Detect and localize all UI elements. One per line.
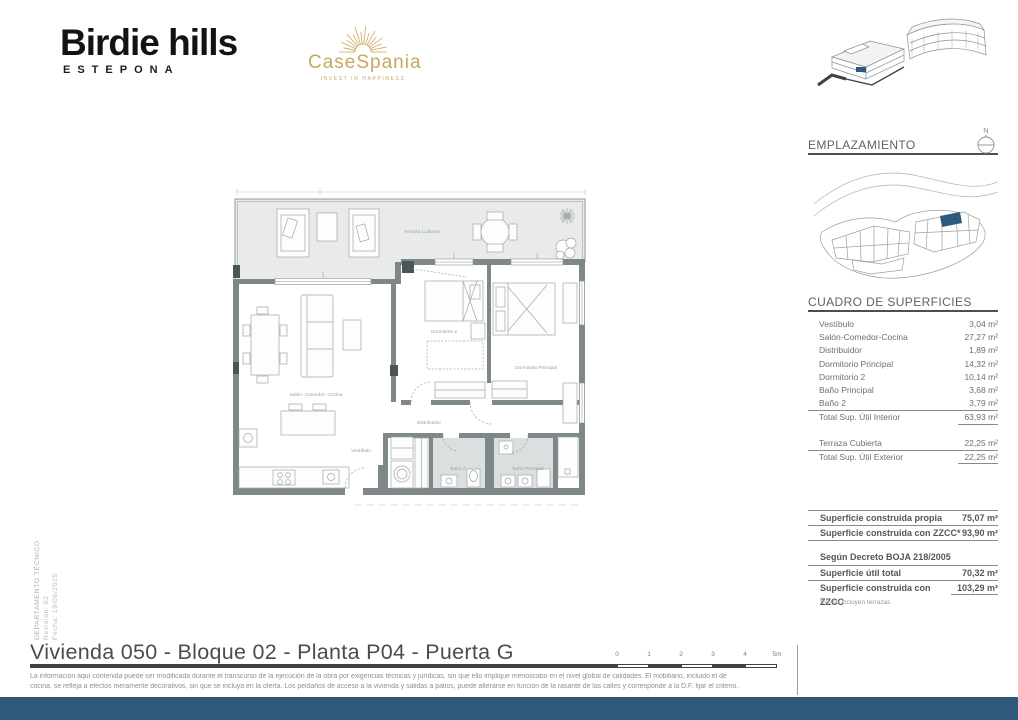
disclaimer-line: cocina, se refleja a efectos meramente d… [30,683,796,690]
scale-bar-segment [649,664,681,668]
room-label-vestibule: Vestíbulo [351,448,371,454]
terrace-footnote: *No se incluyen terrazas [808,599,998,606]
title-rule [30,664,617,668]
technical-meta: DEPARTAMENTO TÉCNICO Revisión: 02 Fecha:… [33,450,60,640]
scale-label: 5m [767,651,787,658]
scale-bar-segment [681,664,713,668]
dimension-line [237,189,585,195]
table-row: Superficie construida con ZZCC103,29 m² [808,580,998,595]
compass-north-icon: N [972,124,1000,156]
highlighted-unit-marker [856,67,866,72]
emplazamiento-title: EMPLAZAMIENTO [808,138,916,152]
bedroom2-furniture [413,269,485,369]
table-row: Dormitorio 210,14 m² [808,371,998,384]
table-row: Distribuidor1,89 m² [808,344,998,357]
table-row: Superficie construida con ZZCC*93,90 m² [808,525,998,541]
room-label-main-bedroom: Dormitorio Principal [515,365,557,371]
table-row: Baño Principal3,68 m² [808,384,998,397]
emplazamiento-rule [808,153,998,155]
scale-bar-segment [713,664,745,668]
site-plan [812,160,1000,298]
floor-plan-drawing: Terraza Cubierta Salón- Comedor- Cocina … [215,185,605,515]
table-row: Baño 23,79 m² [808,397,998,410]
floorplan-sheet: Birdie hills ESTEPONA CaseSpania INVEST … [0,0,1018,720]
scale-bar-segment [745,664,777,668]
table-row: Dormitorio Principal14,32 m² [808,358,998,371]
scale-bar-segment [617,664,649,668]
surfaces-rule [808,310,998,312]
surfaces-table: Vestíbulo3,04 m² Salón-Comedor-Cocina27,… [808,318,998,464]
department-label: DEPARTAMENTO TÉCNICO [33,450,42,640]
birdie-hills-sublogo: ESTEPONA [63,64,180,76]
terrace-row: Terraza Cubierta22,25 m² [808,437,998,450]
table-row: Superficie construida propia75,07 m² [808,510,998,525]
room-label-living: Salón- Comedor- Cocina [290,392,343,398]
table-row: Superficie útil total70,32 m² [808,565,998,580]
date-label: Fecha: 19/06/2025 [51,450,60,640]
sun-icon [559,208,575,224]
scale-label: 0 [607,651,627,658]
total-interior-row: Total Sup. Útil Interior63,93 m² [808,410,998,424]
casespania-sun-icon [308,4,418,54]
scale-label: 2 [671,651,691,658]
footer-bar [0,697,1018,720]
room-label-bath2: Baño 2 [450,466,466,472]
total-exterior-row: Total Sup. Útil Exterior22,25 m² [808,450,998,464]
decree-header: Según Decreto BOJA 218/2005 [808,550,998,565]
table-row: Vestíbulo3,04 m² [808,318,998,331]
sheet-title: Vivienda 050 - Bloque 02 - Planta P04 - … [30,640,514,665]
disclaimer-line: La información aquí contenida puede ser … [30,673,796,680]
casespania-tagline: INVEST IN HAPPINESS [308,76,418,82]
room-label-hall: Distribuidor [417,420,442,426]
room-label-main-bath: Baño Principal [513,466,544,472]
room-label-bedroom2: Dormitorio 2 [431,329,457,335]
footer-divider [797,645,798,695]
birdie-hills-logo: Birdie hills [60,22,237,64]
scale-label: 4 [735,651,755,658]
scale-label: 1 [639,651,659,658]
surfaces-title: CUADRO DE SUPERFICIES [808,295,972,309]
table-row: Salón-Comedor-Cocina27,27 m² [808,331,998,344]
built-surface-block: Superficie construida propia75,07 m² Sup… [808,510,998,606]
scale-label: 3 [703,651,723,658]
living-furniture [239,295,361,488]
building-3d-render [812,5,997,115]
revision-label: Revisión: 02 [42,450,51,640]
compass-label: N [983,126,988,135]
room-label-terrace: Terraza Cubierta [404,229,440,235]
casespania-logo: CaseSpania [308,52,418,74]
